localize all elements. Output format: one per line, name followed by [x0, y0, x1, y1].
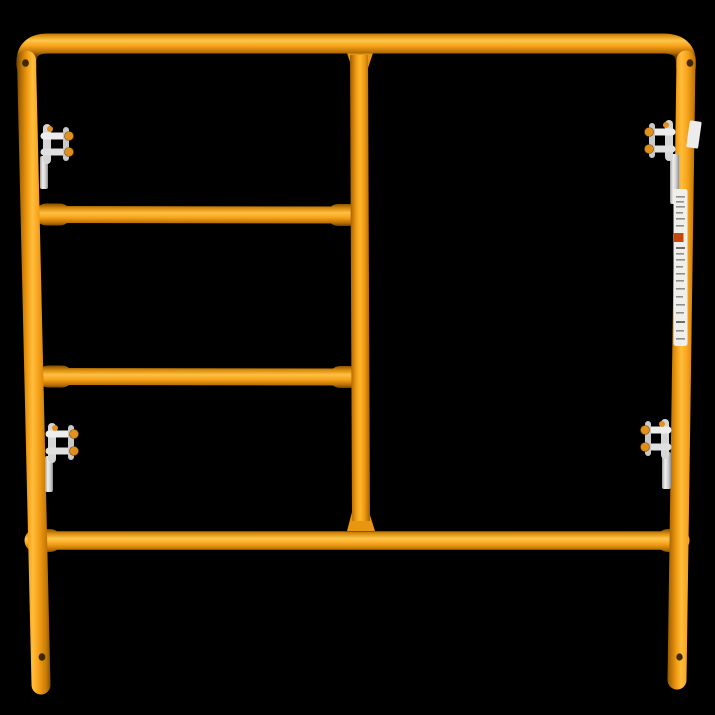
pin-tip [70, 447, 79, 456]
drop-lock-upper-left [40, 126, 74, 189]
spec-label-right-post [674, 189, 688, 346]
pin-tip [70, 430, 79, 439]
spec-label-accent-band [674, 233, 684, 242]
pin-tip [65, 132, 74, 141]
rivet-hole-bottom-left [39, 653, 46, 661]
pin-tip [645, 128, 654, 137]
pin-nub [663, 122, 669, 128]
rivet-hole-bottom-right [676, 653, 682, 660]
right-post [677, 60, 686, 680]
scaffold-frame-image: Orange steel walk-through scaffolding la… [0, 0, 715, 715]
lower-rung [46, 377, 352, 378]
center-post [359, 55, 361, 521]
rivet-hole-top-left [22, 59, 29, 67]
product-photo-stage: Orange steel walk-through scaffolding la… [0, 0, 715, 715]
left-post [27, 60, 42, 685]
pin-tip [641, 443, 650, 452]
rivet-hole-top-right [687, 59, 694, 67]
pin-nub [659, 421, 665, 427]
frame-tubes [26, 44, 686, 686]
pin-tip [641, 426, 650, 435]
pin-nub [47, 126, 53, 132]
drop-lock-lower-right [641, 421, 672, 489]
drop-lock-lower-left [45, 425, 79, 492]
pin-tip [645, 145, 654, 154]
upper-rung [44, 215, 351, 216]
pin-tip [65, 148, 74, 157]
pin-nub [52, 425, 58, 431]
